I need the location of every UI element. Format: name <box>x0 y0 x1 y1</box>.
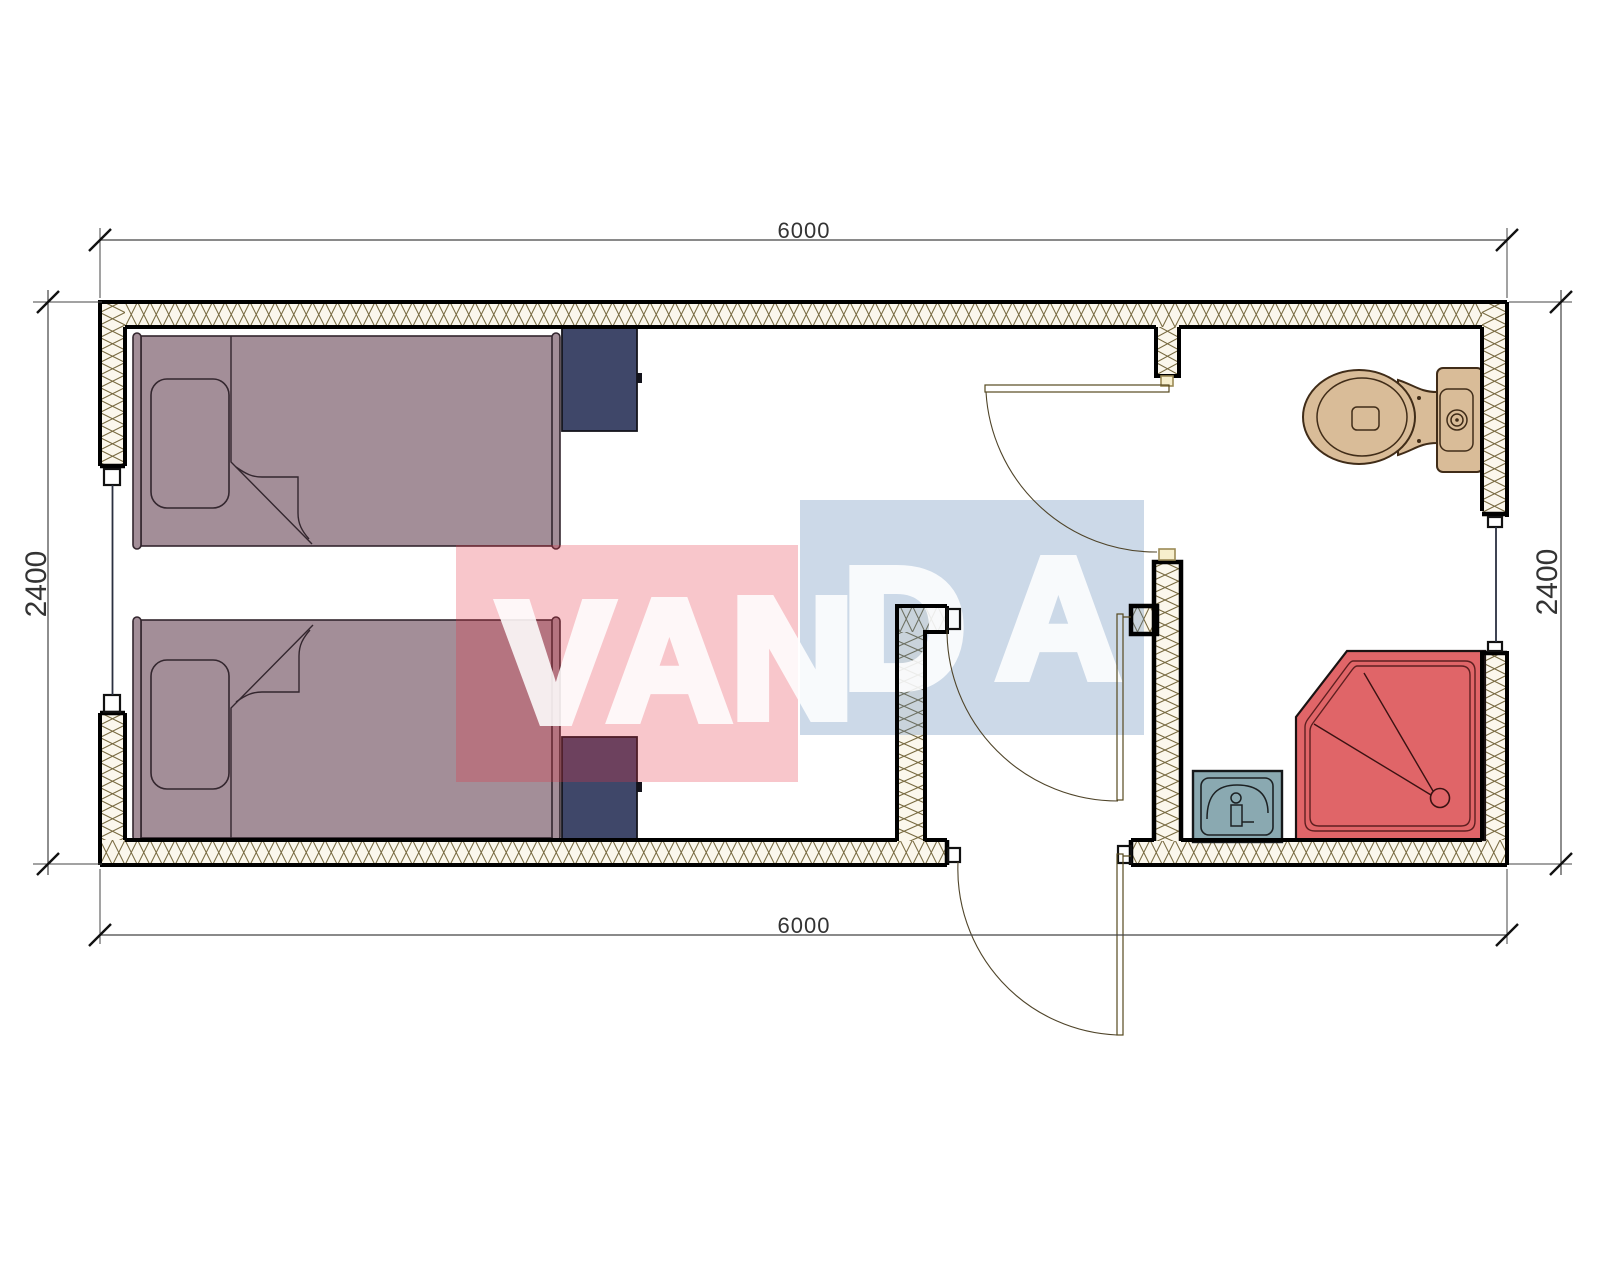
svg-text:A: A <box>608 566 731 756</box>
svg-text:V: V <box>499 568 612 758</box>
svg-text:6000: 6000 <box>778 218 831 243</box>
svg-text:A: A <box>997 524 1120 714</box>
svg-text:2400: 2400 <box>1531 549 1564 616</box>
svg-text:N: N <box>731 564 854 754</box>
svg-text:6000: 6000 <box>778 913 831 938</box>
svg-text:2400: 2400 <box>20 551 53 618</box>
